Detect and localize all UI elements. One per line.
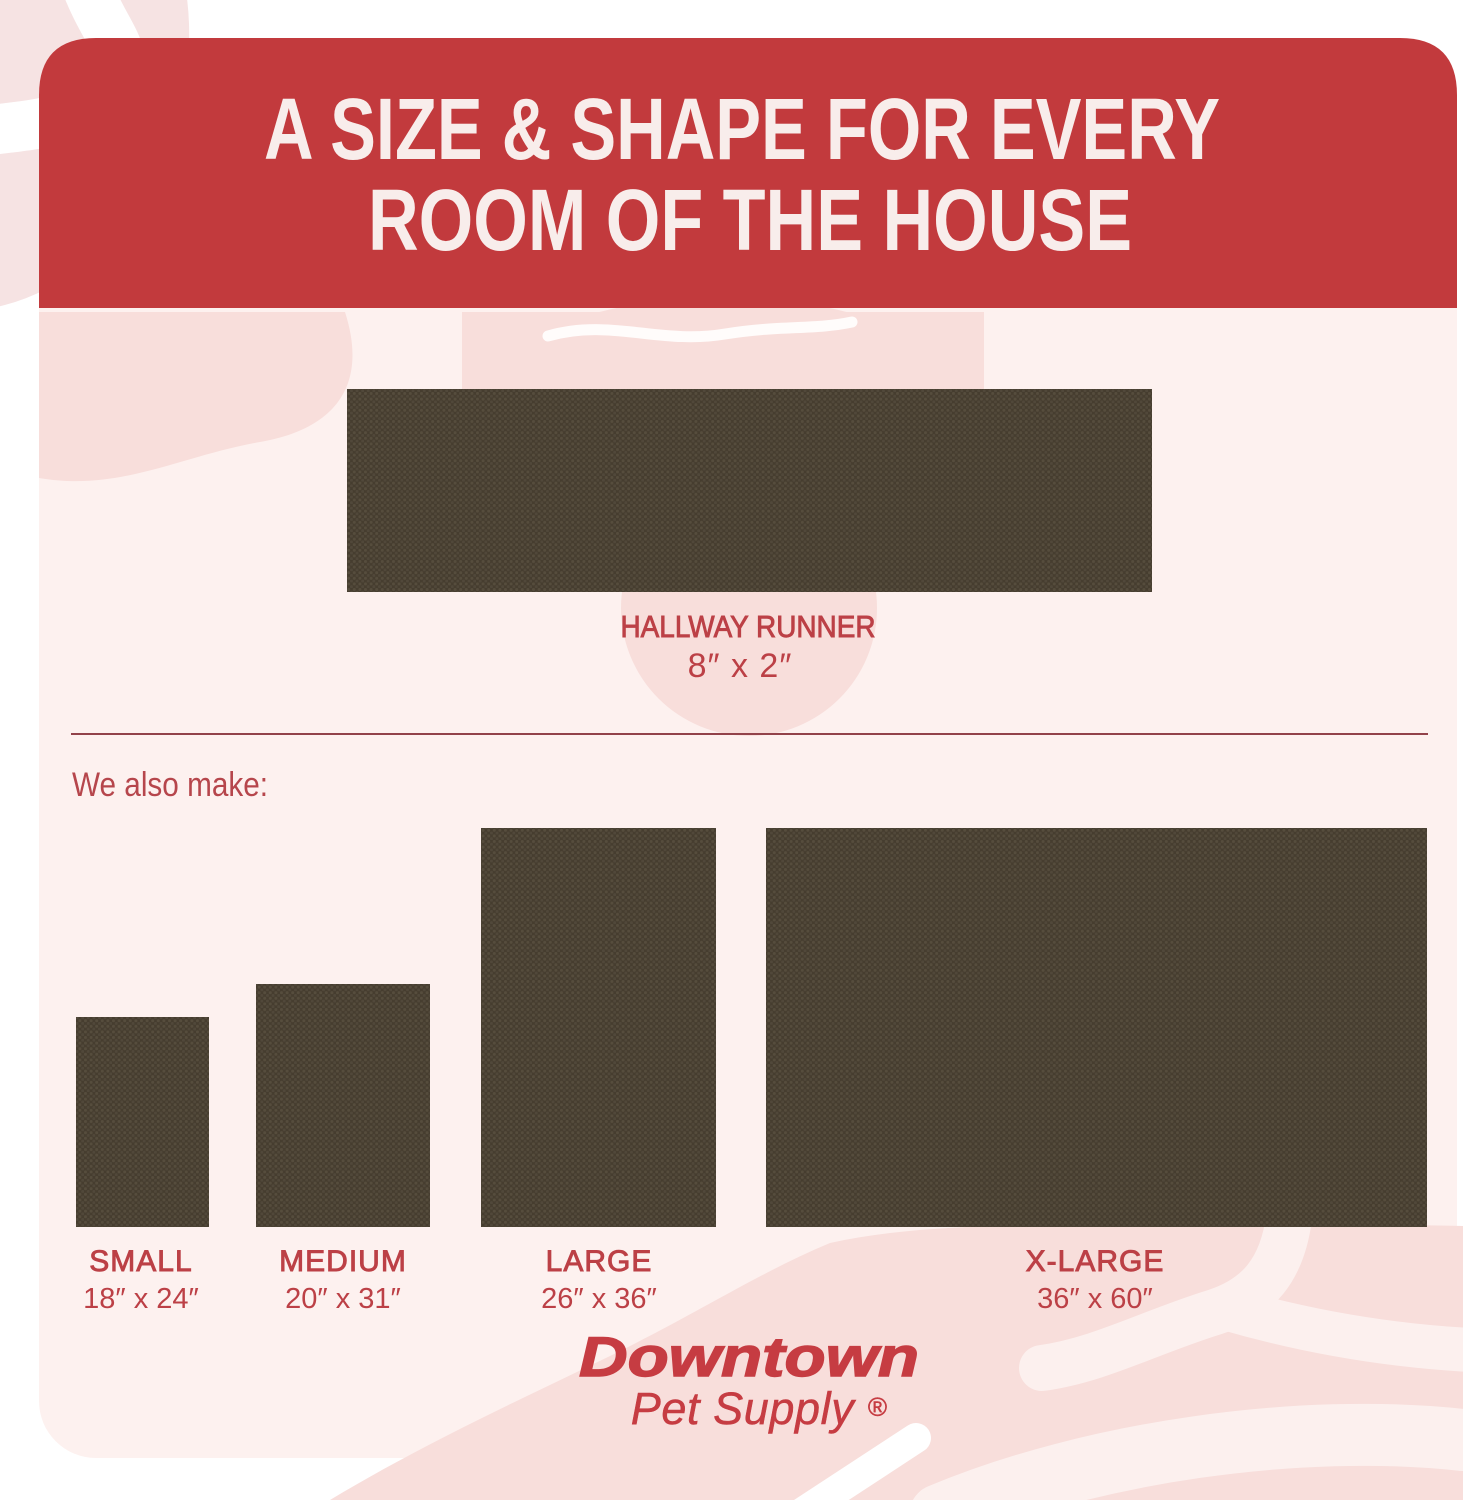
svg-text:LARGE: LARGE (546, 1245, 653, 1278)
svg-text:26″ x 36″: 26″ x 36″ (541, 1283, 657, 1315)
svg-text:HALLWAY RUNNER: HALLWAY RUNNER (621, 609, 876, 644)
svg-text:18″ x 24″: 18″ x 24″ (83, 1283, 199, 1315)
svg-text:A SIZE & SHAPE FOR EVERY: A SIZE & SHAPE FOR EVERY (264, 81, 1220, 178)
svg-text:Pet Supply ®: Pet Supply ® (631, 1383, 888, 1434)
svg-text:We also make:: We also make: (72, 766, 268, 804)
svg-text:ROOM OF THE HOUSE: ROOM OF THE HOUSE (368, 172, 1132, 269)
svg-text:MEDIUM: MEDIUM (279, 1245, 407, 1278)
svg-text:20″ x 31″: 20″ x 31″ (285, 1283, 401, 1315)
svg-text:36″ x 60″: 36″ x 60″ (1037, 1283, 1153, 1315)
svg-text:X-LARGE: X-LARGE (1026, 1245, 1165, 1278)
svg-text:8″ x 2″: 8″ x 2″ (688, 647, 793, 685)
svg-text:Downtown: Downtown (579, 1325, 919, 1388)
svg-text:SMALL: SMALL (89, 1245, 192, 1278)
